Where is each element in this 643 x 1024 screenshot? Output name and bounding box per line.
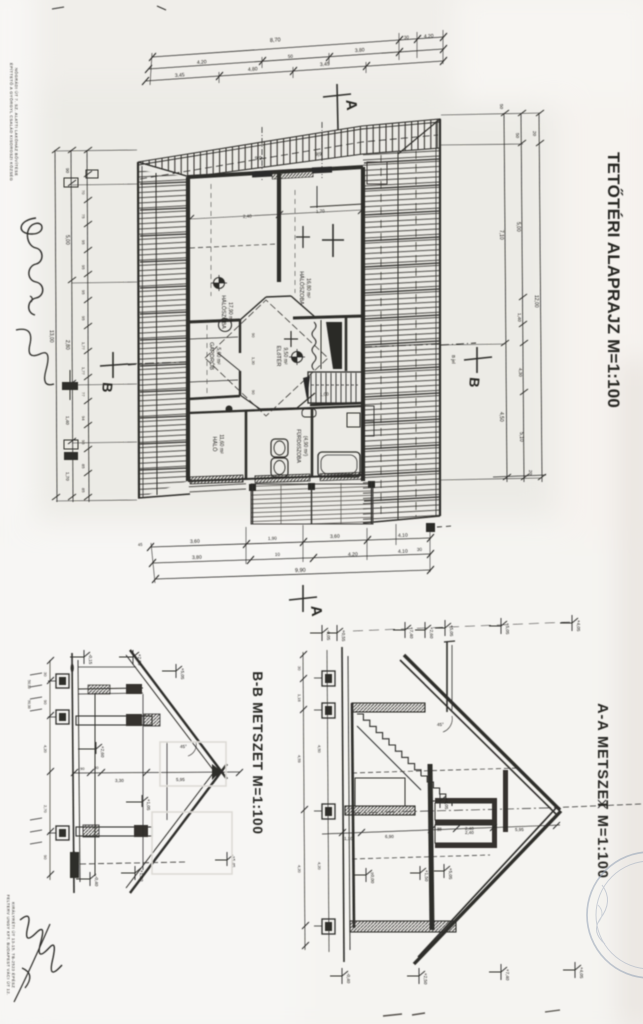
svg-text:20: 20: [528, 470, 533, 476]
svg-text:95: 95: [81, 290, 86, 295]
svg-text:12,00: 12,00: [533, 295, 539, 308]
svg-text:4,80: 4,80: [248, 66, 258, 73]
svg-text:2,70: 2,70: [43, 805, 48, 814]
svg-text:4,30: 4,30: [518, 368, 523, 377]
svg-text:1,00: 1,00: [320, 392, 330, 397]
svg-text:85: 85: [81, 488, 86, 493]
svg-text:13,00: 13,00: [48, 330, 54, 343]
svg-text:HÁLÓSZOBA: HÁLÓSZOBA: [220, 295, 227, 329]
svg-text:-0,40: -0,40: [94, 876, 99, 887]
svg-text:4,10: 4,10: [398, 533, 408, 539]
svg-text:5,00: 5,00: [515, 222, 521, 232]
svg-text:6,90: 6,90: [385, 834, 394, 839]
svg-text:4,20: 4,20: [297, 865, 302, 874]
svg-text:17,90 m²: 17,90 m²: [227, 302, 233, 322]
svg-text:4,10: 4,10: [398, 549, 408, 555]
svg-text:50: 50: [288, 54, 294, 59]
svg-text:1,40: 1,40: [517, 313, 522, 322]
svg-text:1,77: 1,77: [81, 342, 86, 351]
svg-text:90,30: 90,30: [27, 700, 31, 709]
svg-text:30: 30: [297, 666, 302, 671]
svg-text:90: 90: [251, 390, 256, 395]
svg-text:9|9: 9|9: [255, 156, 262, 162]
svg-text:5,60 m²: 5,60 m²: [215, 348, 221, 365]
svg-text:30: 30: [404, 35, 410, 40]
svg-text:4,20: 4,20: [43, 745, 48, 754]
svg-text:8,70: 8,70: [270, 37, 281, 44]
svg-text:A-A METSZET M=1:100: A-A METSZET M=1:100: [594, 703, 610, 879]
svg-text:1,90: 1,90: [268, 536, 277, 541]
svg-text:NÓGRÁDI ÚT 7. SZ. ALATTI LAKÓH: NÓGRÁDI ÚT 7. SZ. ALATTI LAKÓHÁZ BŐVÍTÉS…: [14, 68, 19, 176]
svg-text:B: B: [466, 377, 483, 388]
svg-text:A: A: [342, 99, 360, 112]
svg-text:95: 95: [81, 316, 86, 321]
svg-text:+2,50: +2,50: [423, 973, 428, 985]
svg-text:50,30: 50,30: [27, 680, 31, 689]
svg-text:20: 20: [532, 131, 537, 137]
svg-text:+4,05: +4,05: [576, 620, 581, 632]
svg-text:4,20: 4,20: [317, 862, 322, 871]
svg-text:KIRÁLYRÉTI ÚT 13-15. TB-2523 É: KIRÁLYRÉTI ÚT 13-15. TB-2523 ÉPÉSZ: [11, 902, 16, 988]
svg-text:50: 50: [499, 104, 504, 110]
svg-text:3,80: 3,80: [355, 47, 365, 54]
svg-text:B-B METSZET M=1:100: B-B METSZET M=1:100: [250, 671, 265, 834]
svg-text:2,80: 2,80: [64, 340, 70, 350]
svg-text:1,77: 1,77: [81, 367, 86, 376]
svg-text:90: 90: [65, 168, 70, 174]
svg-text:1,10: 1,10: [344, 836, 353, 841]
svg-text:4,20: 4,20: [424, 33, 434, 40]
svg-text:4,20: 4,20: [197, 59, 207, 66]
svg-text:75: 75: [81, 214, 86, 219]
svg-text:GARDRÓB: GARDRÓB: [208, 342, 215, 370]
svg-text:95: 95: [81, 265, 86, 270]
svg-text:+2,60: +2,60: [429, 627, 434, 639]
svg-text:+2,50: +2,50: [137, 654, 142, 666]
svg-text:1,70: 1,70: [65, 472, 70, 481]
svg-text:1,30: 1,30: [251, 357, 256, 366]
svg-text:4,20: 4,20: [348, 552, 358, 558]
svg-text:16,80 m²: 16,80 m²: [305, 278, 311, 298]
svg-text:1,16: 1,16: [297, 694, 302, 703]
svg-text:5,95: 5,95: [515, 827, 524, 832]
svg-text:+5,05: +5,05: [448, 868, 453, 880]
svg-text:90: 90: [80, 766, 85, 771]
svg-text:+1,05: +1,05: [146, 799, 151, 811]
svg-text:94: 94: [81, 416, 86, 421]
svg-text:30: 30: [94, 765, 99, 770]
svg-text:5,00: 5,00: [64, 235, 70, 245]
svg-text:+0,55: +0,55: [341, 630, 346, 642]
svg-text:30: 30: [417, 547, 423, 552]
svg-text:50: 50: [437, 827, 442, 832]
svg-text:45°: 45°: [437, 722, 444, 727]
svg-text:4,50: 4,50: [498, 412, 504, 422]
svg-text:95: 95: [81, 240, 86, 245]
svg-text:+7,40: +7,40: [505, 969, 510, 981]
svg-text:3,60: 3,60: [190, 539, 200, 545]
svg-text:90: 90: [43, 855, 48, 860]
svg-text:+5,05: +5,05: [180, 668, 185, 680]
svg-text:FÜRDőSZOBA: FÜRDőSZOBA: [295, 429, 302, 463]
svg-text:+4,05: +4,05: [444, 798, 449, 810]
svg-text:5,10: 5,10: [518, 432, 524, 442]
svg-text:95: 95: [81, 440, 86, 445]
svg-text:3,80: 3,80: [192, 555, 202, 561]
svg-text:(4,90 m²): (4,90 m²): [302, 436, 308, 457]
svg-text:+1,50: +1,50: [139, 870, 144, 882]
svg-text:FELTERV UNGY KFT. BUDAPEST VÁC: FELTERV UNGY KFT. BUDAPEST VÁCI ÚT 12.: [6, 895, 11, 996]
svg-text:HÁLÓSZOBA: HÁLÓSZOBA: [298, 271, 305, 305]
svg-text:TETŐTÉRI ALAPRAJZ M=1:100: TETŐTÉRI ALAPRAJZ M=1:100: [604, 152, 623, 408]
svg-text:2,40: 2,40: [465, 830, 474, 835]
svg-text:10: 10: [275, 552, 281, 557]
svg-text:3,60: 3,60: [330, 534, 340, 540]
svg-text:9|9: 9|9: [315, 152, 322, 158]
svg-text:3,30: 3,30: [115, 778, 124, 783]
svg-text:4,59: 4,59: [297, 755, 302, 764]
svg-text:ÉPÍTTETŐ A GYÖRGYL CSALÁD KISO: ÉPÍTTETŐ A GYÖRGYL CSALÁD KISOROSZI KÖZS…: [9, 63, 14, 181]
svg-text:2,40: 2,40: [243, 214, 253, 219]
svg-text:4,50: 4,50: [317, 745, 322, 754]
svg-text:3,45: 3,45: [175, 72, 185, 79]
svg-text:9,50 m²: 9,50 m²: [282, 348, 288, 365]
svg-text:+1,50: +1,50: [424, 870, 429, 882]
svg-text:+2,60: +2,60: [100, 746, 105, 758]
svg-text:-0,15: -0,15: [88, 654, 93, 665]
svg-text:3,45: 3,45: [320, 61, 330, 68]
svg-text:B: B: [99, 382, 116, 393]
svg-text:45°: 45°: [180, 744, 187, 749]
svg-text:1,40: 1,40: [65, 416, 70, 425]
svg-text:9,90: 9,90: [295, 568, 306, 574]
svg-text:70: 70: [81, 190, 86, 195]
svg-text:30: 30: [43, 672, 48, 677]
svg-text:ELőTÉR: ELőTÉR: [275, 346, 282, 367]
svg-text:90: 90: [43, 700, 48, 705]
svg-text:-0,05: -0,05: [326, 630, 331, 641]
svg-text:11,60 m²: 11,60 m²: [218, 434, 224, 454]
svg-text:7,10: 7,10: [498, 230, 504, 240]
svg-text:A: A: [307, 605, 325, 618]
svg-text:-0,40: -0,40: [346, 973, 351, 984]
svg-text:50: 50: [515, 133, 520, 139]
svg-text:5,95: 5,95: [176, 777, 185, 782]
svg-text:±0,00: ±0,00: [370, 872, 375, 884]
svg-text:B jel: B jel: [451, 355, 456, 364]
svg-text:90: 90: [251, 333, 256, 338]
svg-text:1,70: 1,70: [316, 209, 326, 214]
svg-text:77: 77: [81, 392, 86, 397]
svg-text:HÁLÓ: HÁLÓ: [211, 437, 218, 453]
svg-text:+4,05: +4,05: [579, 967, 584, 979]
svg-text:85: 85: [81, 464, 86, 469]
